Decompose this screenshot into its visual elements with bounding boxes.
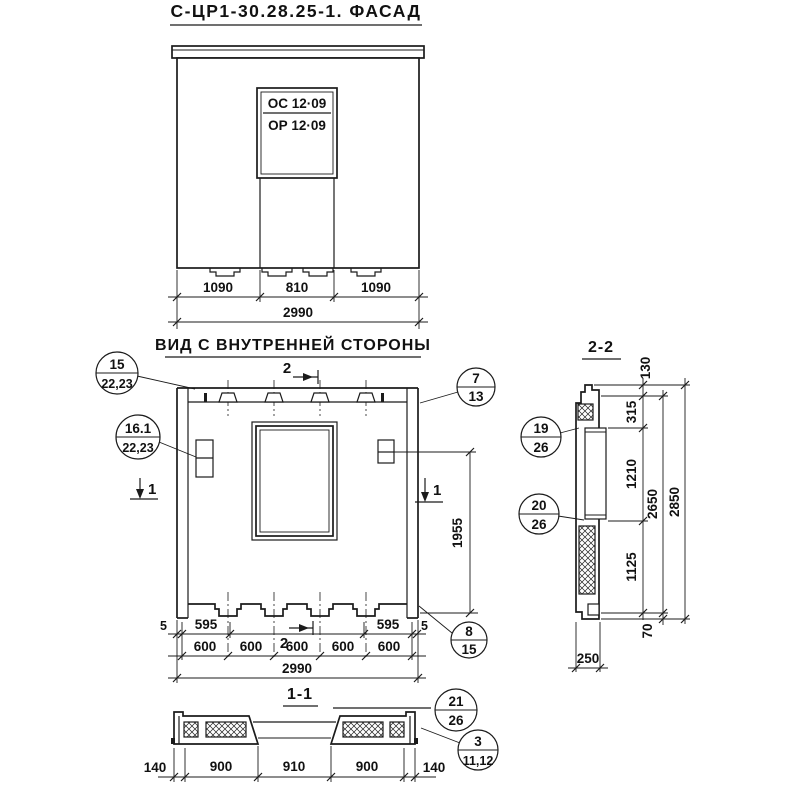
callout-16-num: 16.1 (125, 421, 152, 436)
callout-21-num: 21 (448, 694, 464, 709)
callout-8: 8 15 (419, 606, 487, 658)
facade-view: ОС 12·09 ОР 12·09 (172, 46, 424, 276)
dim-595-right: 595 (377, 617, 400, 632)
callout-16-1: 16.1 22,23 (116, 415, 196, 459)
hatch-left-small (184, 722, 198, 737)
callout-19-sheet: 26 (533, 440, 549, 455)
dim-5-right: 5 (421, 619, 428, 633)
dim-1090-right: 1090 (361, 280, 391, 295)
dim-1090-left: 1090 (203, 280, 233, 295)
dim-5-left: 5 (160, 619, 167, 633)
callout-8-num: 8 (465, 624, 473, 639)
cut-label-1-right: 1 (433, 482, 441, 499)
cut-label-2: 2 (283, 360, 291, 377)
window-mark-top: ОС 12·09 (268, 96, 327, 111)
callout-20: 20 26 (519, 494, 584, 534)
cut-label-1-left: 1 (148, 481, 156, 498)
dim-2990-facade: 2990 (283, 305, 313, 320)
hatch-left-large (206, 722, 246, 737)
callout-19: 19 26 (521, 417, 579, 457)
callout-8-sheet: 15 (461, 642, 477, 657)
dim-600-1: 600 (194, 639, 217, 654)
insulation-hatch-bottom (579, 526, 595, 594)
bottom-step (588, 604, 599, 615)
callout-21-sheet: 26 (448, 713, 464, 728)
section-1-1-title: 1-1 (287, 686, 313, 703)
embedded-plate-left (196, 440, 213, 477)
dim-900-right: 900 (356, 759, 379, 774)
dim-2850: 2850 (667, 487, 682, 517)
inner-view-heading: ВИД С ВНУТРЕННЕЙ СТОРОНЫ (155, 335, 431, 354)
dim-1125: 1125 (624, 552, 639, 582)
dim-140-left: 140 (144, 760, 167, 775)
inner-dimensions: 5 595 595 5 600 600 600 600 600 2990 2 (160, 617, 428, 683)
callout-20-sheet: 26 (531, 517, 547, 532)
dim-130: 130 (638, 357, 653, 380)
dim-315: 315 (624, 400, 639, 423)
dim-595-left: 595 (195, 617, 218, 632)
callout-7-sheet: 13 (468, 389, 484, 404)
callout-15-num: 15 (109, 357, 125, 372)
inner-view-title: ВИД С ВНУТРЕННЕЙ СТОРОНЫ (155, 335, 431, 357)
dim-600-4: 600 (332, 639, 355, 654)
drawing-title: С-ЦР1-30.28.25-1. ФАСАД (170, 1, 422, 25)
dim-600-5: 600 (378, 639, 401, 654)
facade-window: ОС 12·09 ОР 12·09 (257, 88, 337, 178)
dim-2990-inner: 2990 (282, 661, 312, 676)
section-2-2-title: 2-2 (588, 339, 614, 356)
dim-1210: 1210 (624, 459, 639, 489)
hatch-right-small (390, 722, 404, 737)
hatch-right-large (343, 722, 383, 737)
dim-70: 70 (640, 623, 655, 638)
facade-dimensions: 1090 810 1090 2990 (168, 270, 428, 329)
embedded-plate-right (378, 440, 394, 463)
inner-window (252, 422, 337, 540)
callout-16-sheet: 22,23 (122, 441, 153, 455)
dim-250: 250 (577, 651, 600, 666)
cut-label-2-bottom: 2 (280, 635, 288, 652)
callout-7-num: 7 (472, 371, 480, 386)
drawing-sheet: С-ЦР1-30.28.25-1. ФАСАД ОС 12·09 ОР 12·0… (0, 0, 800, 800)
dim-600-3: 600 (286, 639, 309, 654)
drawing-canvas: С-ЦР1-30.28.25-1. ФАСАД ОС 12·09 ОР 12·0… (0, 0, 800, 800)
page-title: С-ЦР1-30.28.25-1. ФАСАД (170, 1, 421, 21)
callout-21: 21 26 (435, 689, 477, 731)
dim-600-2: 600 (240, 639, 263, 654)
dim-810: 810 (286, 280, 309, 295)
callout-7: 7 13 (420, 368, 495, 406)
window-mark-bottom: ОР 12·09 (268, 118, 326, 133)
callout-19-num: 19 (533, 421, 548, 436)
section-mark-1-right: 1 (415, 478, 443, 502)
callout-20-num: 20 (531, 498, 546, 513)
inner-bottom-notches (188, 604, 407, 616)
section-mark-2-top: 2 (283, 360, 318, 384)
dim-910: 910 (283, 759, 306, 774)
section-2-2: 2-2 130 315 1210 1125 2650 2850 70 (568, 339, 690, 672)
callout-15-sheet: 22,23 (101, 377, 132, 391)
dim-1955: 1955 (450, 517, 465, 548)
section-1-1: 1-1 140 900 910 900 140 (144, 686, 446, 782)
facade-bottom-notches (210, 268, 381, 276)
inner-view: 1 1 1955 (130, 380, 478, 660)
dim-2650: 2650 (645, 489, 660, 519)
insulation-hatch-top (578, 404, 593, 420)
window-block (585, 428, 606, 519)
section-mark-1-left: 1 (130, 478, 158, 499)
dim-140-right: 140 (423, 760, 446, 775)
callout-3-num: 3 (474, 734, 482, 749)
lifting-loops (204, 393, 384, 402)
dim-900-left: 900 (210, 759, 233, 774)
callout-3-sheet: 11,12 (463, 754, 494, 768)
